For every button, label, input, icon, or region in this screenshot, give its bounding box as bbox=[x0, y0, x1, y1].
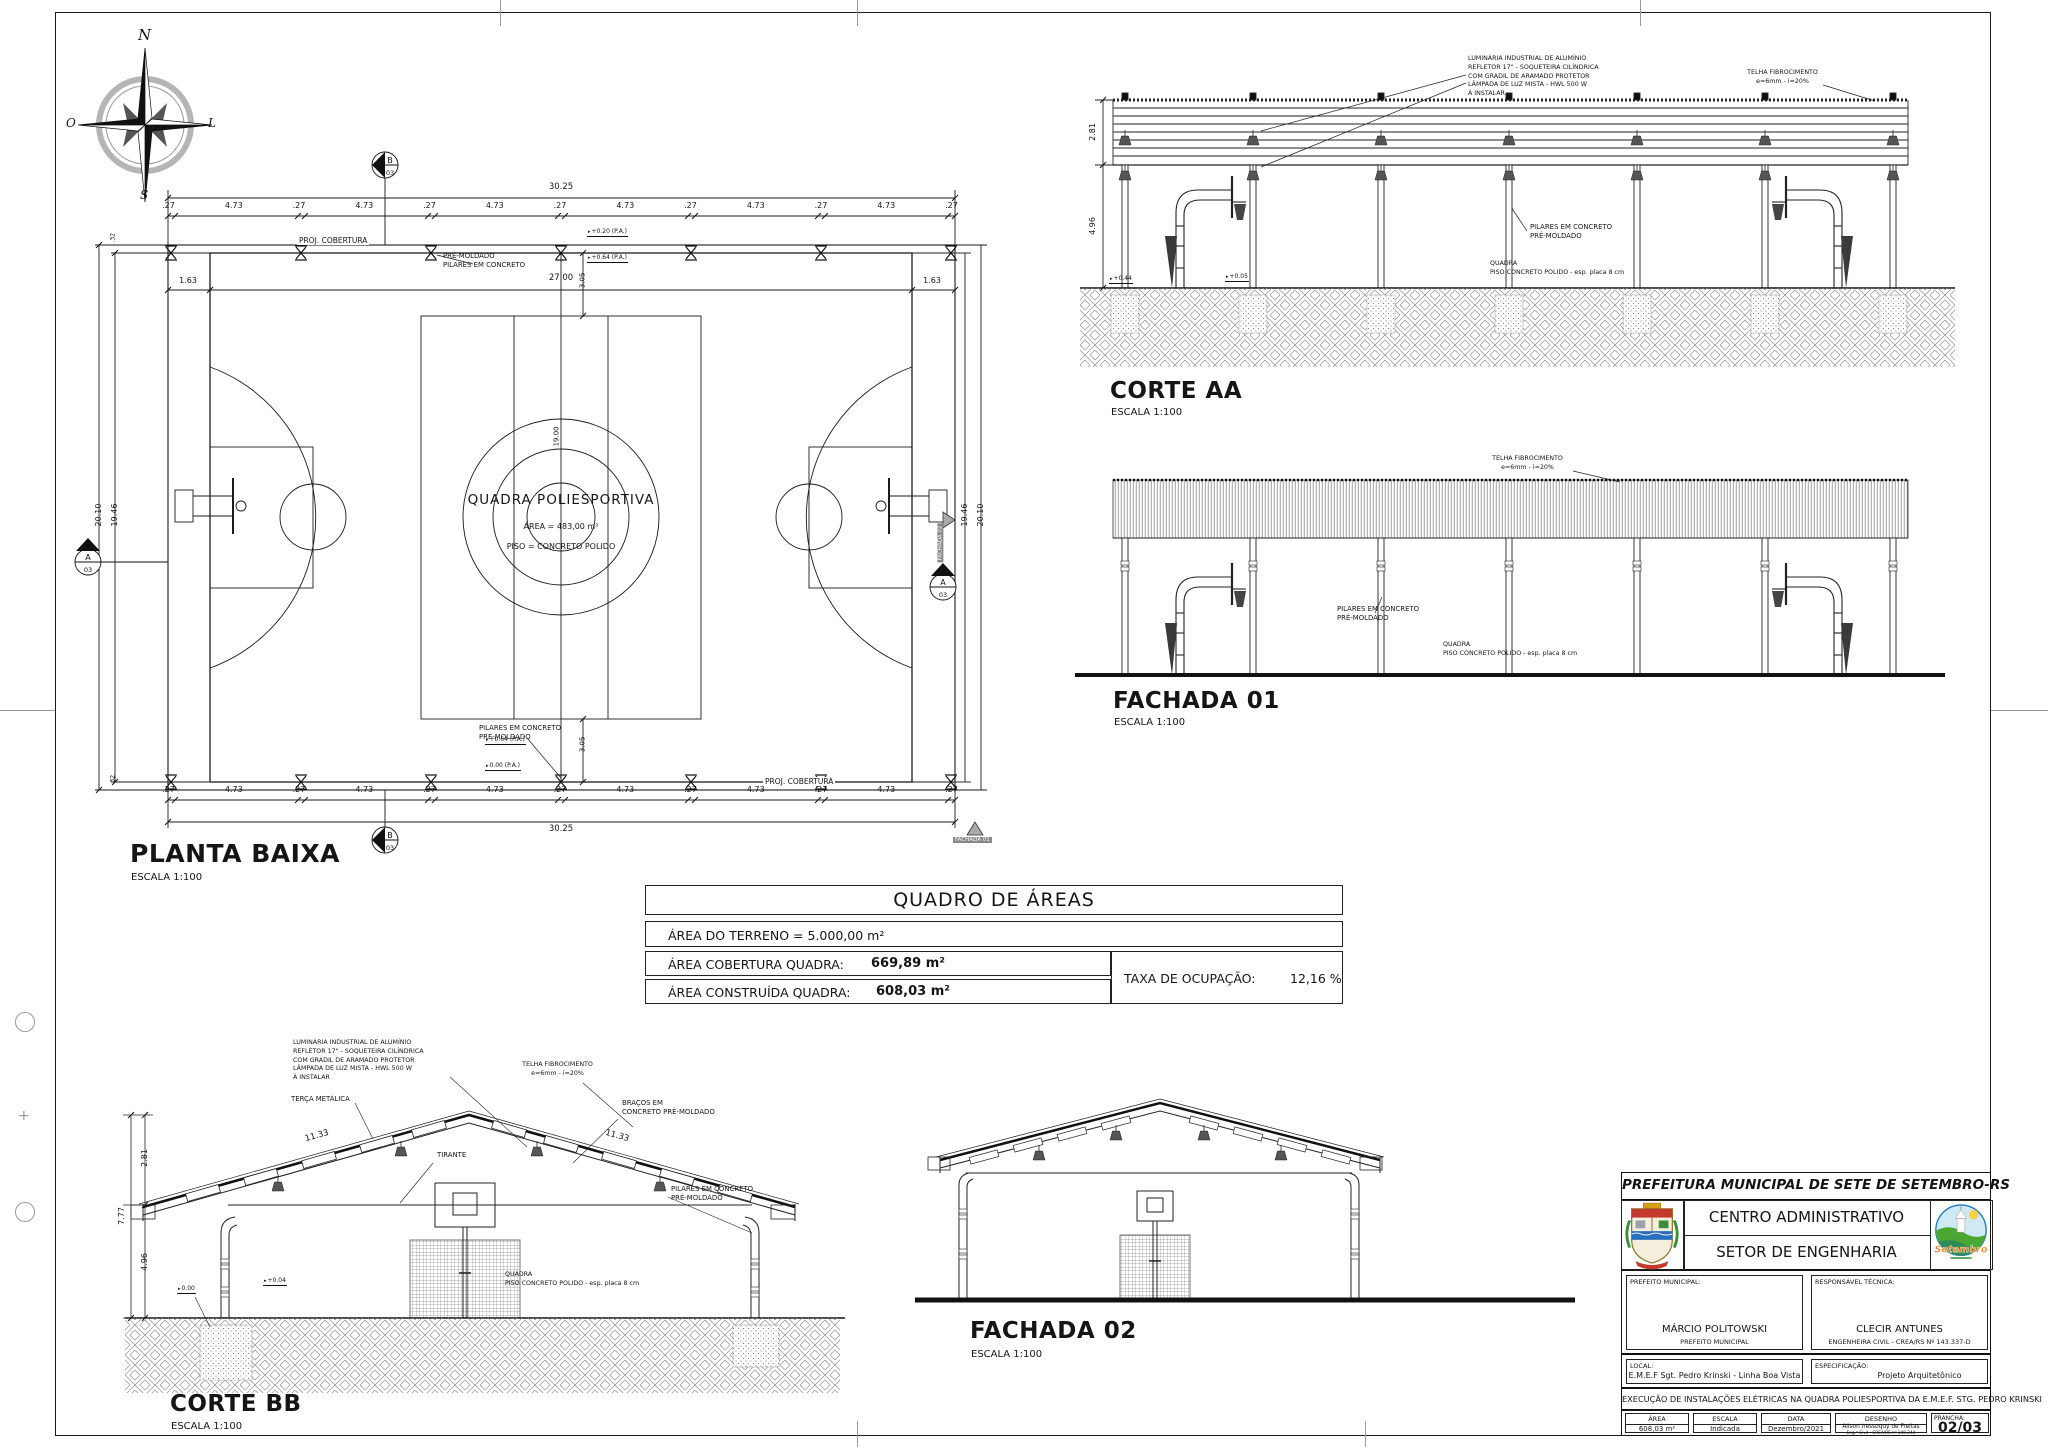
hoop-left bbox=[1165, 176, 1246, 288]
fachada02-lamps bbox=[1033, 1125, 1287, 1160]
dim-2010-right: 20.10 bbox=[976, 495, 986, 535]
prancha-value: 02/03 bbox=[1932, 1420, 1988, 1438]
quadro-header: QUADRO DE ÁREAS bbox=[645, 885, 1343, 915]
local-box: LOCAL: E.M.E.F Sgt. Pedro Krinski - Linh… bbox=[1626, 1359, 1803, 1384]
marker-b-sheet: 03 bbox=[386, 169, 394, 177]
hoop-right bbox=[1772, 176, 1853, 288]
fold-mark bbox=[500, 0, 501, 26]
note-terca: TERÇA METÁLICA bbox=[291, 1095, 350, 1104]
level-1: +0.44 bbox=[1109, 275, 1133, 284]
drawing-sheet: { "common": { "escala": "ESCALA 1:100", … bbox=[0, 0, 2048, 1447]
dim-32-top: .32 bbox=[109, 226, 117, 250]
fachada02-purlins bbox=[969, 1116, 1351, 1164]
level-2: +0.05 bbox=[1225, 273, 1249, 282]
hoop-left bbox=[1165, 563, 1246, 675]
titleblock-signatures-row: PREFEITO MUNICIPAL: MÁRCIO POLITOWSKI PR… bbox=[1621, 1270, 1991, 1354]
fachada02-figure: FACHADA 02 ESCALA 1:100 bbox=[915, 1085, 1595, 1425]
dim-row-top: .274.73.274.73.274.73.274.73.274.73.274.… bbox=[165, 201, 955, 210]
quadro-taxa-cell: TAXA DE OCUPAÇÃO: 12,16 % bbox=[1111, 951, 1343, 1004]
corte-bb-purlins bbox=[186, 1120, 753, 1201]
escala-value: Indicada bbox=[1694, 1425, 1756, 1434]
area-value: 608,03 m² bbox=[1626, 1425, 1688, 1434]
marker-b-letter: B bbox=[387, 156, 393, 165]
dim-496: 4.96 bbox=[1088, 208, 1098, 244]
marker-a-sheet: 03 bbox=[939, 591, 947, 599]
level-bottom-2: 0.00 (P.A.) bbox=[485, 762, 521, 771]
fold-mark bbox=[1640, 0, 1641, 26]
centro-administrativo-cell: CENTRO ADMINISTRATIVO bbox=[1684, 1200, 1931, 1236]
corte-bb-roof bbox=[131, 1111, 799, 1221]
quadro-construida-row: ÁREA CONSTRUÍDA QUADRA: 608,03 m² bbox=[645, 979, 1111, 1004]
quadro-title: QUADRO DE ÁREAS bbox=[646, 889, 1342, 913]
court-name: QUADRA POLIESPORTIVA bbox=[411, 492, 711, 509]
note-luminaria: LUMINÁRIA INDUSTRIAL DE ALUMÍNIOREFLETOR… bbox=[293, 1039, 424, 1083]
court-area: ÁREA = 483,00 m² bbox=[471, 522, 651, 532]
note-pilares: PILARES EM CONCRETOPRÉ-MOLDADO bbox=[1337, 605, 1419, 624]
centro-administrativo: CENTRO ADMINISTRATIVO bbox=[1685, 1208, 1928, 1227]
prancha-box: PRANCHA: 02/03 bbox=[1931, 1413, 1989, 1433]
fachada02-backboard bbox=[1120, 1191, 1190, 1300]
fachada01-scale: ESCALA 1:100 bbox=[1114, 717, 1185, 730]
corte-aa-lamps bbox=[1119, 130, 1899, 180]
fachada02-scale: ESCALA 1:100 bbox=[971, 1349, 1042, 1362]
logo-text: Setembro bbox=[1934, 1244, 1987, 1255]
dim-281: 2.81 bbox=[1088, 114, 1098, 150]
titleblock-header: PREFEITURA MUNICIPAL DE SETE DE SETEMBRO… bbox=[1621, 1172, 1991, 1200]
planta-scale: ESCALA 1:100 bbox=[131, 872, 202, 885]
responsavel-titulo: ENGENHEIRA CIVIL - CREA/RS Nº 143.337-D bbox=[1812, 1338, 1987, 1346]
proj-cobertura-bottom: PROJ. COBERTURA bbox=[763, 777, 835, 786]
fachada02-title: FACHADA 02 bbox=[970, 1317, 1137, 1346]
local-value: E.M.E.F Sgt. Pedro Krinski - Linha Boa V… bbox=[1627, 1371, 1802, 1381]
dim-court-width: 27.00 bbox=[511, 273, 611, 284]
dim-163-left: 1.63 bbox=[163, 276, 213, 286]
construida-value: 608,03 m² bbox=[876, 984, 950, 1000]
area-box: ÁREA 608,03 m² bbox=[1625, 1413, 1689, 1433]
marker-a-letter: A bbox=[940, 578, 946, 587]
corte-bb-title: CORTE BB bbox=[170, 1390, 302, 1419]
area-label: ÁREA bbox=[1626, 1415, 1688, 1425]
responsavel-nome: CLECIR ANTUNES bbox=[1812, 1324, 1987, 1337]
especificacao-box: ESPECIFICAÇÃO: Projeto Arquitetônico bbox=[1811, 1359, 1988, 1384]
dim-305-top: 3.05 bbox=[579, 262, 588, 298]
dim-total-bottom: 30.25 bbox=[461, 824, 661, 835]
especificacao-value: Projeto Arquitetônico bbox=[1852, 1371, 1987, 1381]
corte-aa-title: CORTE AA bbox=[1110, 377, 1242, 406]
marker-a-letter: A bbox=[85, 553, 91, 562]
taxa-value: 12,16 % bbox=[1290, 971, 1342, 987]
fold-mark bbox=[0, 710, 55, 711]
note-pilares: PILARES EM CONCRETOPRÉ-MOLDADO bbox=[671, 1185, 753, 1204]
note-quadra: QUADRAPISO CONCRETO POLIDO - esp. placa … bbox=[505, 1271, 639, 1289]
setor-engenharia-cell: SETOR DE ENGENHARIA bbox=[1684, 1235, 1931, 1271]
dim-total-top: 30.25 bbox=[461, 182, 661, 193]
corte-bb-scale: ESCALA 1:100 bbox=[171, 1421, 242, 1434]
note-bracos: BRAÇOS EMCONCRETO PRÉ-MOLDADO bbox=[622, 1099, 715, 1118]
planta-baixa-figure: A 03 A 03 B 03 B 03 30.25 .274.73.274.73… bbox=[75, 140, 1005, 890]
cobertura-value: 669,89 m² bbox=[871, 956, 945, 972]
note-telha: TELHA FIBROCIMENTOe=6mm - i=20% bbox=[1480, 455, 1575, 473]
dim-1946-left: 19.46 bbox=[110, 495, 120, 535]
especificacao-label: ESPECIFICAÇÃO: bbox=[1815, 1362, 1868, 1370]
responsavel-box: RESPONSÁVEL TÉCNICA: CLECIR ANTUNES ENGE… bbox=[1811, 1275, 1988, 1350]
level-top-2: +0.64 (P.A.) bbox=[587, 254, 628, 263]
note-telha: TELHA FIBROCIMENTOe=6mm - i=20% bbox=[1735, 69, 1830, 87]
level-bottom-1: +0.64 (P.A.) bbox=[485, 736, 526, 745]
desenho-box: DESENHO Alison Iressoquy de Freitas Eng.… bbox=[1835, 1413, 1927, 1433]
escala-label: ESCALA bbox=[1694, 1415, 1756, 1425]
note-pilares: PILARES EM CONCRETOPRÉ-MOLDADO bbox=[1530, 223, 1612, 242]
court-piso: PISO = CONCRETO POLIDO bbox=[471, 542, 651, 552]
descricao-text: EXECUÇÃO DE INSTALAÇÕES ELÉTRICAS NA QUA… bbox=[1622, 1394, 1988, 1404]
data-value: Dezembro/2021 bbox=[1762, 1425, 1830, 1434]
dim-2010-left: 20.10 bbox=[94, 495, 104, 535]
escala-box: ESCALA Indicada bbox=[1693, 1413, 1757, 1433]
corte-aa-columns bbox=[1122, 93, 1896, 288]
dim-1946-right: 19.46 bbox=[960, 495, 970, 535]
marker-a-sheet: 03 bbox=[84, 566, 92, 574]
quadro-cobertura-row: ÁREA COBERTURA QUADRA: 669,89 m² bbox=[645, 951, 1111, 976]
compass-north-label: N bbox=[138, 26, 151, 44]
quadro-de-areas-table: QUADRO DE ÁREAS ÁREA DO TERRENO = 5.000,… bbox=[645, 885, 1345, 1005]
responsavel-label: RESPONSÁVEL TÉCNICA: bbox=[1815, 1278, 1895, 1286]
cobertura-label: ÁREA COBERTURA QUADRA: bbox=[668, 957, 844, 973]
dim-row-bottom: .274.73.274.73.274.73.274.73.274.73.274.… bbox=[165, 785, 955, 794]
planta-title: PLANTA BAIXA bbox=[130, 838, 340, 869]
prefeito-cargo: PREFEITO MUNICIPAL bbox=[1627, 1338, 1802, 1346]
level-004: +0.04 bbox=[263, 1277, 287, 1286]
dim-305-bottom: 3.05 bbox=[579, 726, 588, 762]
marker-b-letter: B bbox=[387, 831, 393, 840]
desenho-titulo: Eng.º Civil - CREA/RS nº 248.244 bbox=[1836, 1430, 1926, 1435]
corte-bb-backboard bbox=[410, 1183, 520, 1318]
fold-mark bbox=[857, 0, 858, 26]
prefeito-label: PREFEITO MUNICIPAL: bbox=[1630, 1278, 1701, 1286]
roof-band bbox=[1113, 480, 1908, 538]
local-label: LOCAL: bbox=[1630, 1362, 1653, 1370]
compass-west-label: O bbox=[66, 116, 76, 130]
fachada01-title: FACHADA 01 bbox=[1113, 687, 1280, 716]
construida-label: ÁREA CONSTRUÍDA QUADRA: bbox=[668, 985, 850, 1001]
fold-mark bbox=[857, 1421, 858, 1447]
note-tirante: TIRANTE bbox=[437, 1151, 466, 1160]
coat-of-arms bbox=[1622, 1201, 1682, 1269]
note-telha: TELHA FIBROCIMENTOe=6mm - i=20% bbox=[510, 1061, 605, 1079]
level-000: 0.00 bbox=[177, 1285, 196, 1294]
data-label: DATA bbox=[1762, 1415, 1830, 1425]
corte-aa-scale: ESCALA 1:100 bbox=[1111, 407, 1182, 420]
note-luminaria: LUMINÁRIA INDUSTRIAL DE ALUMÍNIOREFLETOR… bbox=[1468, 55, 1599, 99]
corte-aa-figure: LUMINÁRIA INDUSTRIAL DE ALUMÍNIOREFLETOR… bbox=[1075, 55, 1975, 475]
compass-east-label: L bbox=[208, 116, 216, 130]
prefeito-nome: MÁRCIO POLITOWSKI bbox=[1627, 1324, 1802, 1337]
dim-163-right: 1.63 bbox=[905, 276, 959, 286]
prefeito-box: PREFEITO MUNICIPAL: MÁRCIO POLITOWSKI PR… bbox=[1626, 1275, 1803, 1350]
municipality-logo: Setembro bbox=[1931, 1201, 1991, 1269]
registration-circle bbox=[15, 1012, 35, 1032]
titleblock-local-row: LOCAL: E.M.E.F Sgt. Pedro Krinski - Linh… bbox=[1621, 1354, 1991, 1388]
marker-b-sheet: 03 bbox=[386, 844, 394, 852]
logo-cell: Setembro bbox=[1930, 1200, 1993, 1270]
titleblock-footer-row: ÁREA 608,03 m² ESCALA Indicada DATA Deze… bbox=[1621, 1410, 1991, 1436]
data-box: DATA Dezembro/2021 bbox=[1761, 1413, 1831, 1433]
quadro-terreno-row: ÁREA DO TERRENO = 5.000,00 m² bbox=[645, 921, 1343, 947]
dim-281: 2.81 bbox=[140, 1140, 150, 1176]
fachada02-roof bbox=[928, 1099, 1384, 1173]
fachada02-marker-label: FACHADA 02 bbox=[937, 524, 943, 563]
fachada02-marker-icon bbox=[943, 512, 955, 528]
note-quadra: QUADRAPISO CONCRETO POLIDO - esp. placa … bbox=[1443, 641, 1577, 659]
fold-mark bbox=[1991, 710, 2048, 711]
corte-bb-figure: LUMINÁRIA INDUSTRIAL DE ALUMÍNIOREFLETOR… bbox=[115, 1035, 855, 1445]
dim-496: 4.96 bbox=[140, 1244, 150, 1280]
fachada01-figure: TELHA FIBROCIMENTOe=6mm - i=20% PILARES … bbox=[1075, 455, 1975, 775]
dim-777: 7.77 bbox=[117, 1196, 127, 1236]
fachada01-marker-label: FACHADA 01 bbox=[953, 837, 992, 843]
dim-32-bottom: .32 bbox=[109, 768, 117, 792]
taxa-label: TAXA DE OCUPAÇÃO: bbox=[1124, 971, 1255, 987]
level-top-1: +0.20 (P.A.) bbox=[587, 228, 628, 237]
registration-circle bbox=[15, 1202, 35, 1222]
note-pilares-top: PRÉ-MOLDADOPILARES EM CONCRETO bbox=[443, 252, 525, 271]
terreno-text: ÁREA DO TERRENO = 5.000,00 m² bbox=[668, 928, 884, 944]
proj-cobertura-top: PROJ. COBERTURA bbox=[297, 236, 369, 245]
setor-engenharia: SETOR DE ENGENHARIA bbox=[1685, 1243, 1928, 1262]
hoop-right bbox=[1772, 563, 1853, 675]
section-marker-b-top bbox=[372, 152, 398, 245]
coat-of-arms-cell bbox=[1621, 1200, 1684, 1270]
title-block: PREFEITURA MUNICIPAL DE SETE DE SETEMBRO… bbox=[1621, 1172, 1991, 1436]
fachada01-marker-icon bbox=[967, 822, 983, 835]
titleblock-brand-row: CENTRO ADMINISTRATIVO SETOR DE ENGENHARI… bbox=[1621, 1200, 1991, 1270]
header-text: PREFEITURA MUNICIPAL DE SETE DE SETEMBRO… bbox=[1622, 1177, 1988, 1194]
registration-cross: + bbox=[18, 1108, 30, 1126]
note-quadra: QUADRAPISO CONCRETO POLIDO - esp. placa … bbox=[1490, 260, 1624, 278]
titleblock-descricao-row: EXECUÇÃO DE INSTALAÇÕES ELÉTRICAS NA QUA… bbox=[1621, 1388, 1991, 1410]
dim-19: 19.00 bbox=[553, 416, 562, 456]
